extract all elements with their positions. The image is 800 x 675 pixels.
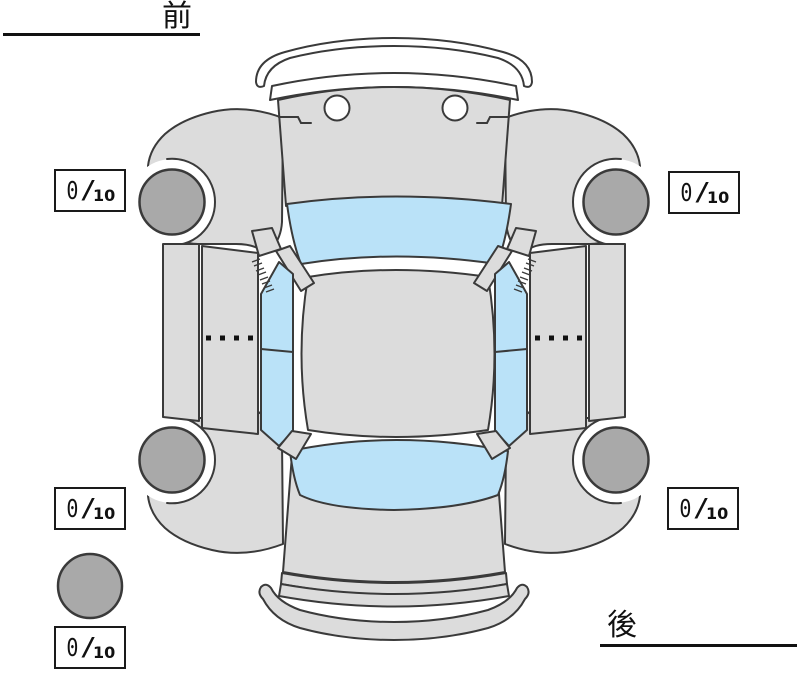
headlight-left-icon <box>325 96 350 121</box>
tread-rating-spare: 0 / 10 <box>54 626 126 669</box>
windshield <box>287 197 511 265</box>
rear-label-text: 後 <box>600 611 637 641</box>
rear-orientation-label: 後 <box>600 611 797 647</box>
tread-rating-front-right: 0 / 10 <box>668 171 740 214</box>
tread-rating-rear-right: 0 / 10 <box>667 487 739 530</box>
rating-slash: / <box>84 493 93 522</box>
rating-slash: / <box>84 175 93 204</box>
rating-value: 0 <box>680 178 691 207</box>
rating-max: 10 <box>93 643 115 662</box>
rating-value: 0 <box>679 494 690 523</box>
rating-value: 0 <box>66 176 77 205</box>
rating-max: 10 <box>707 188 729 207</box>
front-label-text: 前 <box>162 2 200 32</box>
rating-max: 10 <box>93 186 115 205</box>
rear-window <box>290 440 508 510</box>
tread-rating-front-left: 0 / 10 <box>54 169 126 212</box>
rating-slash: / <box>84 632 93 661</box>
tread-rating-rear-left: 0 / 10 <box>54 487 126 530</box>
spare-tire-icon <box>58 554 122 618</box>
rating-max: 10 <box>93 504 115 523</box>
corner-rear-right <box>505 410 659 553</box>
corner-rear-left <box>129 410 283 553</box>
rating-max: 10 <box>706 504 728 523</box>
vehicle-inspection-diagram: 前 後 0 / 10 0 / 10 0 / 10 0 / 10 0 / 10 <box>0 0 800 675</box>
rating-value: 0 <box>66 494 77 523</box>
front-orientation-label: 前 <box>3 2 200 36</box>
car-top-view <box>0 0 800 675</box>
door-right <box>530 244 625 434</box>
door-left <box>163 244 258 434</box>
rating-value: 0 <box>66 633 77 662</box>
headlight-right-icon <box>443 96 468 121</box>
roof <box>302 270 495 437</box>
rating-slash: / <box>697 493 706 522</box>
hood <box>278 87 510 206</box>
rating-slash: / <box>698 177 707 206</box>
